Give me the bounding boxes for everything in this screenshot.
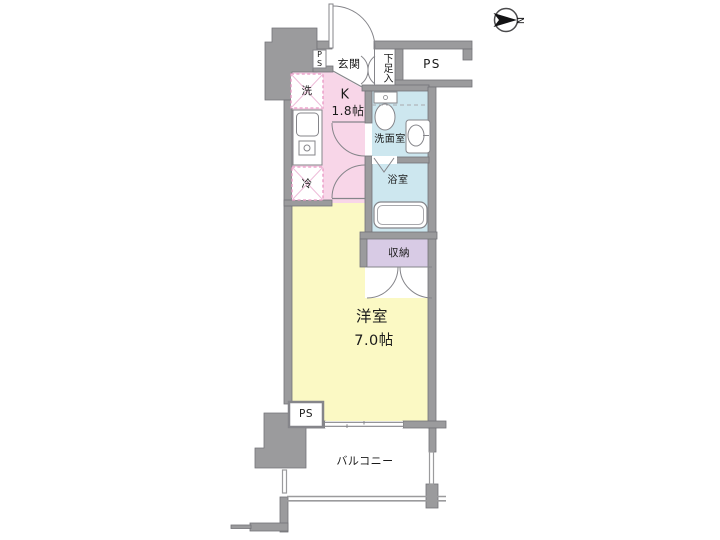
wall-left-main	[284, 100, 292, 404]
compass-north-label: N	[514, 17, 525, 24]
label-main-room-size: 7.0帖	[354, 334, 394, 349]
label-main-room-type: 洋室	[356, 309, 388, 325]
label-pipe-space-top: PS	[423, 58, 441, 70]
compass-icon: N	[494, 9, 526, 32]
label-washer: 洗	[302, 86, 313, 97]
label-fridge: 冷	[302, 179, 313, 190]
balcony-railing	[287, 497, 446, 501]
wall-bottom-right	[403, 421, 446, 428]
vanity-sink-icon	[406, 120, 430, 153]
front-door-icon	[329, 4, 375, 48]
wall-neighbor-thin	[231, 525, 251, 529]
wall-under-entrance	[362, 85, 429, 91]
wall-closet-top	[360, 232, 437, 239]
balcony-partition-left	[283, 470, 287, 493]
label-kitchen-size: 1.8帖	[331, 105, 364, 117]
bathtub-icon	[374, 202, 427, 228]
toilet-icon	[374, 92, 397, 130]
label-shoe-cabinet: 下足入	[381, 53, 391, 83]
kitchen-counter-icon	[293, 110, 322, 165]
main-room-floor-left	[292, 203, 365, 421]
label-bathroom: 浴室	[388, 176, 409, 186]
floorplan-canvas: N 玄関 下足入 PS PS 洗 K 1.8帖 冷 洗面室 浴室 収納 洋室 7…	[0, 0, 720, 540]
wall-right-stub	[463, 49, 472, 60]
wall-closet-left	[360, 239, 367, 267]
label-pipe-space-entrance: PS	[315, 50, 323, 68]
balcony-window	[325, 421, 403, 428]
wall-corridor-lower	[365, 156, 372, 232]
entrance-inner-arcs	[361, 56, 375, 84]
wall-balcony-left-horizontal	[250, 523, 288, 531]
label-entrance: 玄関	[338, 59, 361, 70]
closet-double-door-swing	[367, 267, 432, 298]
balcony-partition-right	[430, 452, 434, 484]
label-closet: 収納	[388, 248, 410, 259]
wall-kitchen-bottom	[284, 200, 332, 206]
wall-balcony-right-stub	[429, 428, 436, 452]
wall-bath-divider	[396, 157, 429, 163]
label-balcony: バルコニー	[336, 456, 393, 467]
label-kitchen-type: K	[340, 89, 349, 102]
label-pipe-space-bottom: PS	[299, 409, 313, 420]
wall-top-right	[374, 41, 472, 49]
wall-corridor-upper	[365, 91, 372, 123]
label-washroom: 洗面室	[374, 135, 406, 145]
